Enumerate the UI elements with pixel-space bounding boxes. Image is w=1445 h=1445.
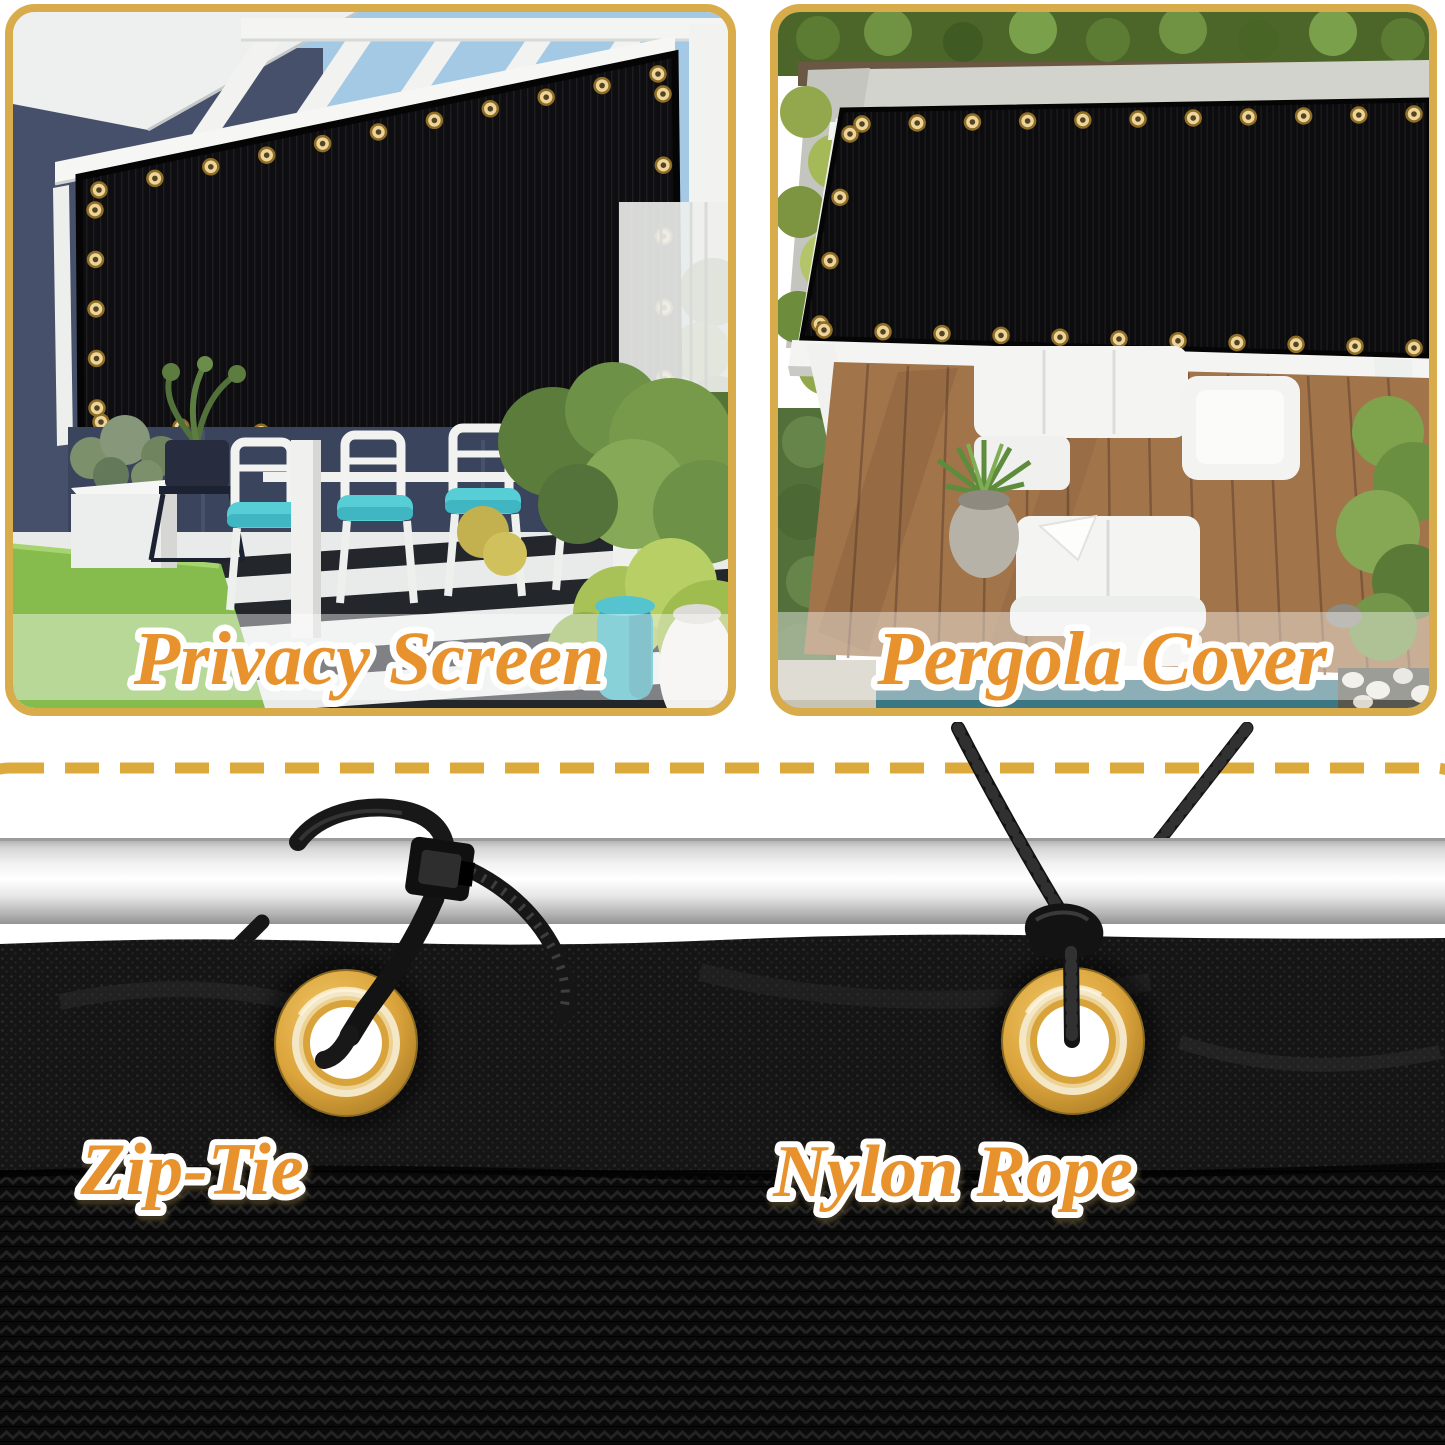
installation-graphic: Zip-Tie Nylon Rope bbox=[0, 722, 1445, 1445]
installation-section: Zip-Tie Nylon Rope bbox=[0, 722, 1445, 1445]
product-feature-image: Privacy Screen bbox=[0, 0, 1445, 1445]
panel-pergola-cover: Pergola Cover bbox=[770, 4, 1437, 716]
mounting-pole bbox=[0, 838, 1445, 924]
armchair bbox=[1182, 376, 1300, 480]
privacy-screen-photo: Privacy Screen bbox=[13, 12, 728, 708]
pergola-cover-label: Pergola Cover bbox=[876, 617, 1328, 701]
shade-fabric-knit bbox=[0, 1170, 1445, 1445]
zip-tie-label: Zip-Tie bbox=[79, 1129, 303, 1211]
privacy-screen-label: Privacy Screen bbox=[133, 617, 605, 701]
panel-privacy-screen: Privacy Screen bbox=[5, 4, 736, 716]
pergola-cover-photo: Pergola Cover bbox=[778, 12, 1429, 708]
hedge-blobs bbox=[796, 12, 1425, 62]
trellis bbox=[619, 202, 728, 392]
nylon-rope-label: Nylon Rope bbox=[772, 1131, 1133, 1213]
pergola-cover-fabric bbox=[802, 100, 1429, 356]
